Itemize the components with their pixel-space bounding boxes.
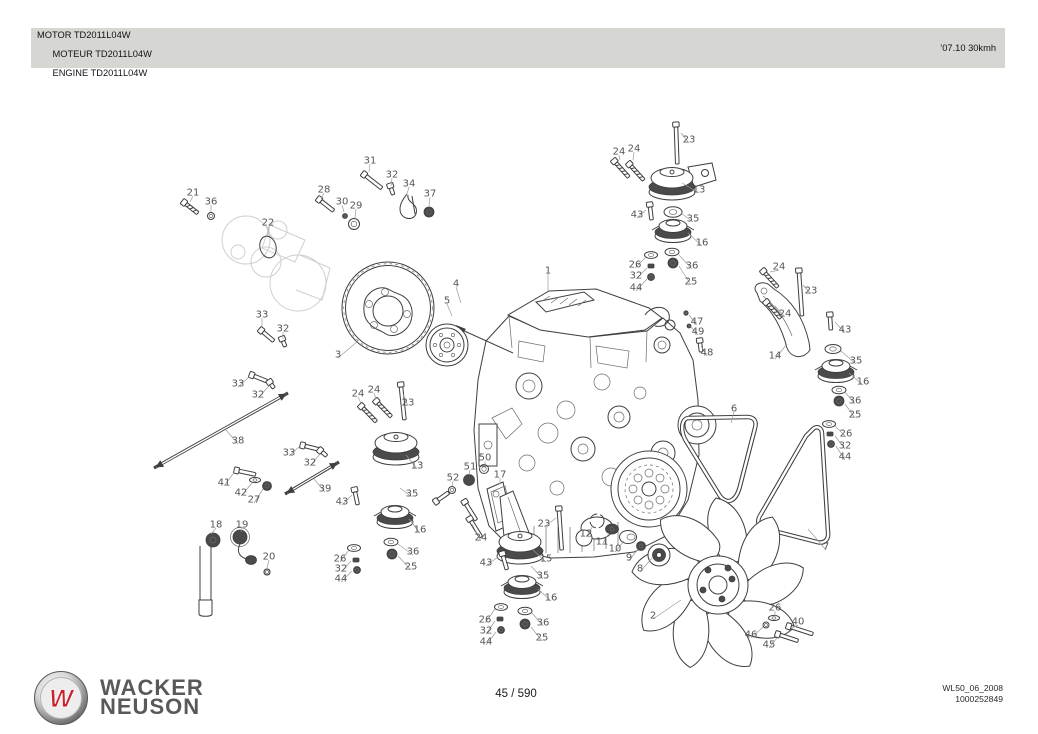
part-callout: 32 xyxy=(277,324,290,335)
part-callout: 43 xyxy=(336,497,349,508)
part-callout: 35 xyxy=(537,571,550,582)
flywheel xyxy=(342,262,434,354)
part-callout: 33 xyxy=(232,379,245,390)
part-callout: 25 xyxy=(685,277,698,288)
part-callout: 9 xyxy=(626,553,632,564)
part-callout: 16 xyxy=(696,238,709,249)
clamp-34 xyxy=(400,194,416,219)
part-callout: 36 xyxy=(686,261,699,272)
part-callout: 23 xyxy=(402,398,415,409)
part-callout: 32 xyxy=(630,271,643,282)
part-callout: 26 xyxy=(769,603,782,614)
part-callout: 11 xyxy=(596,537,609,548)
part-callout: 22 xyxy=(262,218,275,229)
brand-wordmark: WACKER NEUSON xyxy=(100,678,204,716)
page-indicator: 45 / 590 xyxy=(456,688,576,700)
part-callout: 23 xyxy=(538,519,551,530)
part-callout: 41 xyxy=(218,478,231,489)
part-callout: 25 xyxy=(405,562,418,573)
part-callout: 24 xyxy=(773,262,786,273)
part-callout: 33 xyxy=(283,448,296,459)
part-callout: 1 xyxy=(545,266,551,277)
part-callout: 49 xyxy=(692,327,705,338)
part-callout: 5 xyxy=(444,296,450,307)
part-callout: 36 xyxy=(407,547,420,558)
part-callout: 16 xyxy=(414,525,427,536)
wacker-neuson-logo-icon: W xyxy=(33,670,89,726)
part-callout: 24 xyxy=(628,144,641,155)
document-codes: WL50_06_2008 1000252849 xyxy=(942,683,1003,705)
part-callout: 29 xyxy=(350,201,363,212)
document-code: WL50_06_2008 xyxy=(942,683,1003,694)
part-callout: 6 xyxy=(731,404,737,415)
part-callout: 31 xyxy=(364,156,377,167)
oring-20 xyxy=(264,569,270,575)
part-callout: 32 xyxy=(386,170,399,181)
part-callout: 23 xyxy=(683,135,696,146)
part-callout: 38 xyxy=(232,436,245,447)
part-callout: 36 xyxy=(537,618,550,629)
part-callout: 44 xyxy=(630,283,643,294)
part-callout: 12 xyxy=(580,529,593,540)
part-callout: 35 xyxy=(850,356,863,367)
part-callout: 43 xyxy=(839,325,852,336)
part-callout: 44 xyxy=(839,452,852,463)
part-callout: 21 xyxy=(187,188,200,199)
part-callout: 8 xyxy=(637,564,643,575)
part-callout: 43 xyxy=(480,558,493,569)
part-callout: 42 xyxy=(235,488,248,499)
part-callout: 17 xyxy=(494,470,507,481)
part-callout: 27 xyxy=(248,495,261,506)
fitting-19 xyxy=(231,528,257,565)
part-callout: 44 xyxy=(480,637,493,648)
brand-line-2: NEUSON xyxy=(100,694,200,719)
ghost-part xyxy=(222,216,330,311)
part-callout: 3 xyxy=(335,350,341,361)
part-callout: 24 xyxy=(613,147,626,158)
document-number: 1000252849 xyxy=(942,694,1003,705)
part-callout: 14 xyxy=(769,351,782,362)
part-callout: 28 xyxy=(318,185,331,196)
part-callout: 15 xyxy=(540,554,553,565)
part-callout: 19 xyxy=(236,520,249,531)
part-callout: 13 xyxy=(693,185,706,196)
part-callout: 16 xyxy=(545,593,558,604)
part-callout: 24 xyxy=(352,389,365,400)
part-callout: 52 xyxy=(447,473,460,484)
part-callout: 23 xyxy=(805,286,818,297)
part-callout: 50 xyxy=(479,453,492,464)
part-callout: 36 xyxy=(849,396,862,407)
part-callout: 40 xyxy=(792,617,805,628)
part-callout: 20 xyxy=(263,552,276,563)
part-callout: 16 xyxy=(857,377,870,388)
part-callout: 35 xyxy=(406,489,419,500)
part-callout: 46 xyxy=(745,630,758,641)
logo-w-letter: W xyxy=(49,685,75,713)
part-callout: 24 xyxy=(779,309,792,320)
part-callout: 32 xyxy=(839,441,852,452)
part-callout: 30 xyxy=(336,197,349,208)
part-callout: 32 xyxy=(480,626,493,637)
part-callout: 26 xyxy=(629,260,642,271)
pipe-18 xyxy=(199,533,220,616)
part-callout: 44 xyxy=(335,574,348,585)
part-callout: 7 xyxy=(823,542,829,553)
exploded-parts-diagram: 1234567891011121313141516161616171819202… xyxy=(0,0,1038,734)
part-callout: 4 xyxy=(453,279,459,290)
catalog-page: MOTOR TD2011L04W MOTEUR TD2011L04W ENGIN… xyxy=(0,0,1038,734)
part-callout: 10 xyxy=(609,544,622,555)
part-callout: 32 xyxy=(304,458,317,469)
footer: W WACKER NEUSON 45 / 590 WL50_06_2008 10… xyxy=(0,660,1038,734)
part-callout: 48 xyxy=(701,348,714,359)
part-callout: 24 xyxy=(368,385,381,396)
part-callout: 18 xyxy=(210,520,223,531)
part-callout: 43 xyxy=(631,210,644,221)
part-callout: 25 xyxy=(849,410,862,421)
part-callout: 32 xyxy=(252,390,265,401)
damper-disc xyxy=(426,324,468,366)
part-callout: 26 xyxy=(840,429,853,440)
part-callout: 2 xyxy=(650,611,656,622)
part-callout: 37 xyxy=(424,189,437,200)
part-callout: 35 xyxy=(687,214,700,225)
part-callout: 34 xyxy=(403,179,416,190)
part-callout: 13 xyxy=(411,461,424,472)
rod-38 xyxy=(154,393,288,468)
part-callout: 45 xyxy=(763,640,776,651)
part-callout: 33 xyxy=(256,310,269,321)
part-callout: 39 xyxy=(319,484,332,495)
part-callout: 25 xyxy=(536,633,549,644)
part-callout: 26 xyxy=(479,615,492,626)
part-callout: 51 xyxy=(464,462,477,473)
part-callout: 24 xyxy=(475,533,488,544)
part-callout: 36 xyxy=(205,197,218,208)
